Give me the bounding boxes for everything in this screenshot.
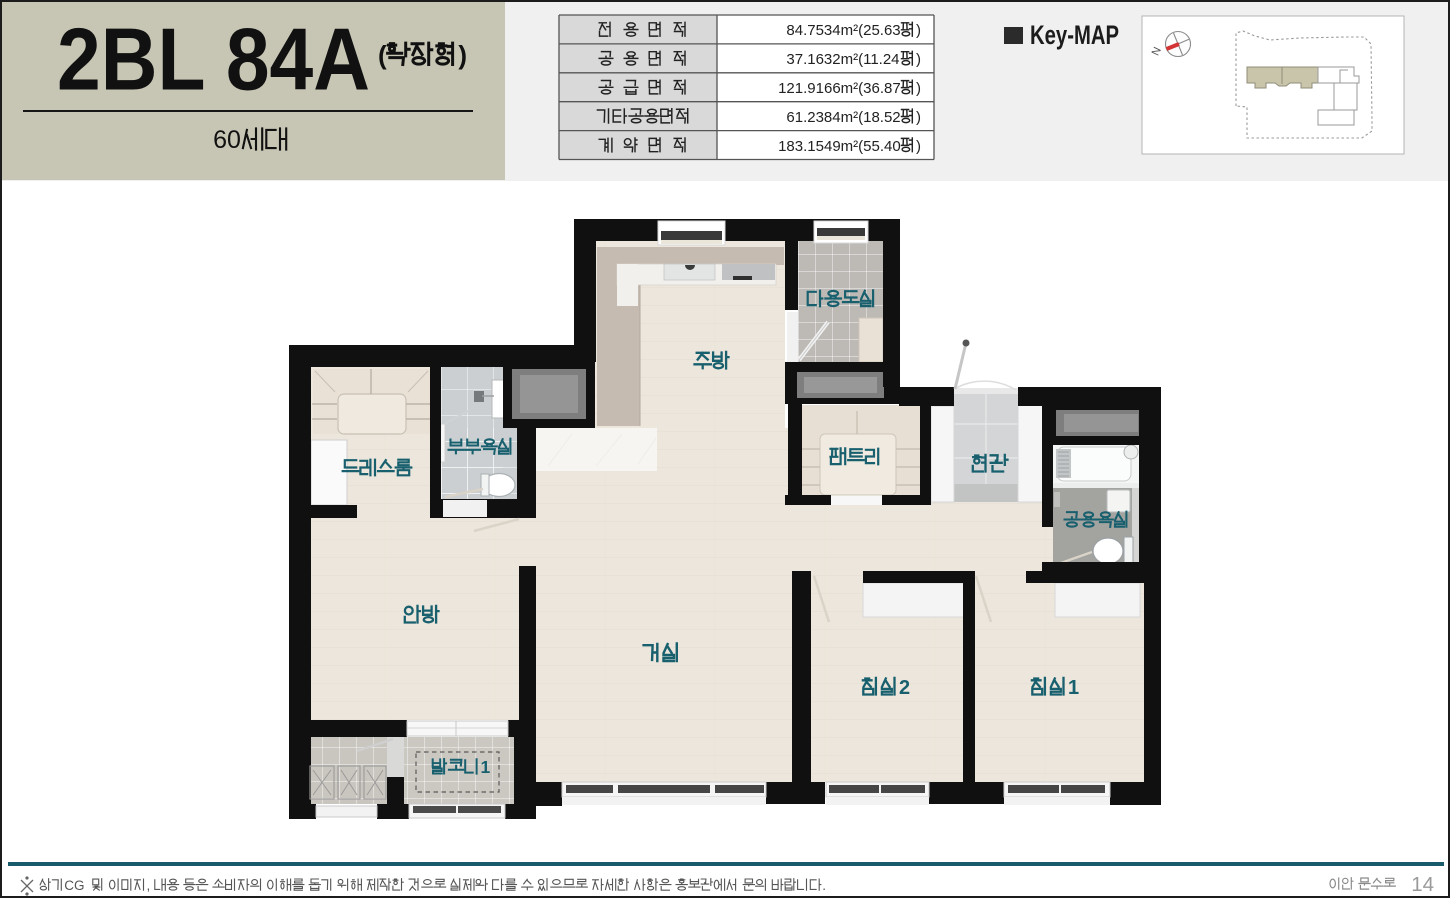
svg-text:Key-MAP: Key-MAP [1030,20,1119,50]
svg-text:): ) [916,80,921,97]
svg-text:84.7534m²(25.63: 84.7534m²(25.63 [786,22,900,39]
svg-text:121.9166m²(36.87: 121.9166m²(36.87 [778,80,901,97]
svg-text:(: ( [378,40,387,70]
svg-text:1: 1 [481,757,491,777]
svg-text:60: 60 [213,126,241,154]
svg-text:14: 14 [1411,873,1434,896]
svg-text:2BL 84A: 2BL 84A [57,10,370,109]
svg-text:1: 1 [1068,677,1079,699]
svg-text:): ) [916,109,921,126]
svg-text:,: , [147,878,151,893]
svg-text:61.2384m²(18.52: 61.2384m²(18.52 [786,109,900,126]
svg-text:): ) [916,51,921,68]
svg-text:): ) [916,22,921,39]
svg-text:2: 2 [899,677,910,699]
svg-text:): ) [916,138,921,155]
svg-text:183.1549m²(55.40: 183.1549m²(55.40 [778,138,901,155]
svg-text:37.1632m²(11.24: 37.1632m²(11.24 [786,51,899,68]
svg-text:CG: CG [64,878,84,893]
svg-text:): ) [458,40,467,70]
svg-text:.: . [822,878,826,893]
